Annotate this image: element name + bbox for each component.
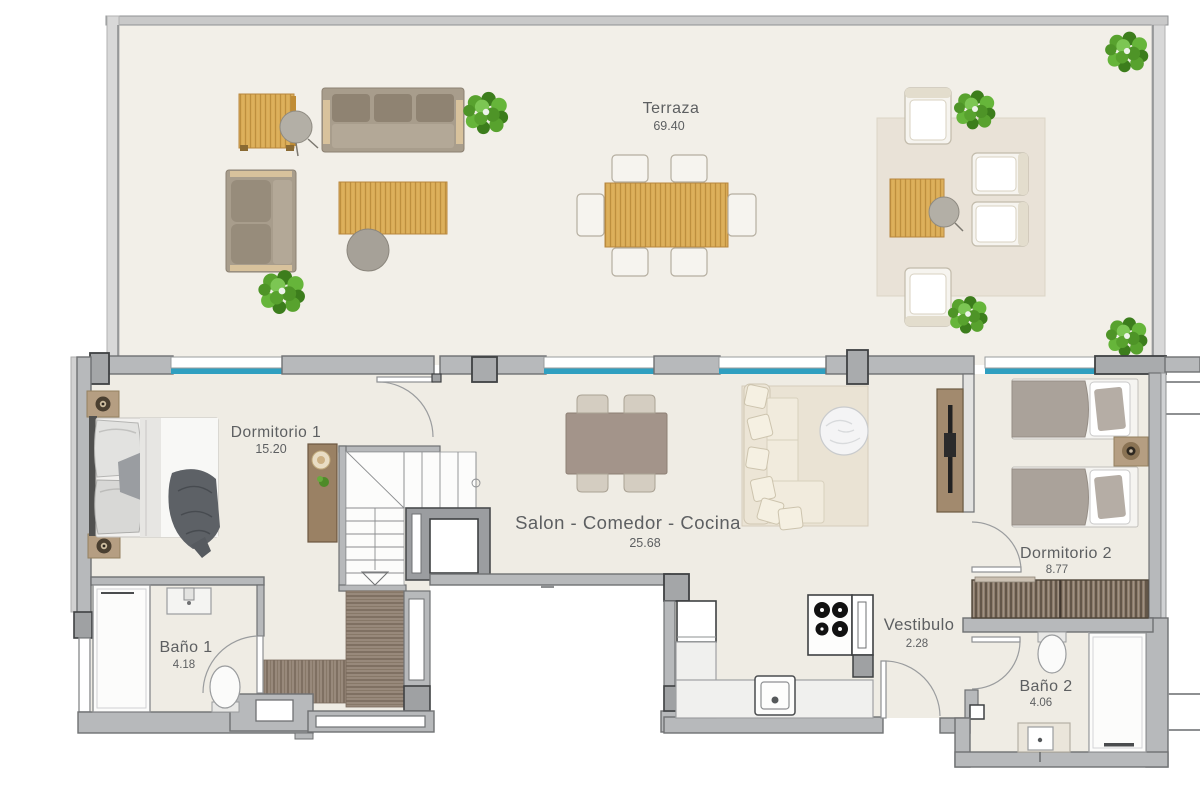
svg-text:4.06: 4.06 <box>1030 697 1052 709</box>
svg-text:Vestibulo: Vestibulo <box>884 616 955 634</box>
svg-text:69.40: 69.40 <box>653 119 684 133</box>
svg-text:Baño 2: Baño 2 <box>1019 678 1072 695</box>
svg-text:2.28: 2.28 <box>906 638 928 650</box>
svg-text:Dormitorio 2: Dormitorio 2 <box>1020 545 1112 562</box>
svg-text:Terraza: Terraza <box>643 100 700 117</box>
svg-text:Salon - Comedor - Cocina: Salon - Comedor - Cocina <box>515 512 741 533</box>
svg-text:Baño 1: Baño 1 <box>159 639 212 656</box>
svg-text:25.68: 25.68 <box>629 536 660 550</box>
svg-text:8.77: 8.77 <box>1046 564 1068 576</box>
svg-text:4.18: 4.18 <box>173 659 195 671</box>
svg-text:Dormitorio 1: Dormitorio 1 <box>231 424 321 441</box>
svg-text:15.20: 15.20 <box>255 442 286 456</box>
